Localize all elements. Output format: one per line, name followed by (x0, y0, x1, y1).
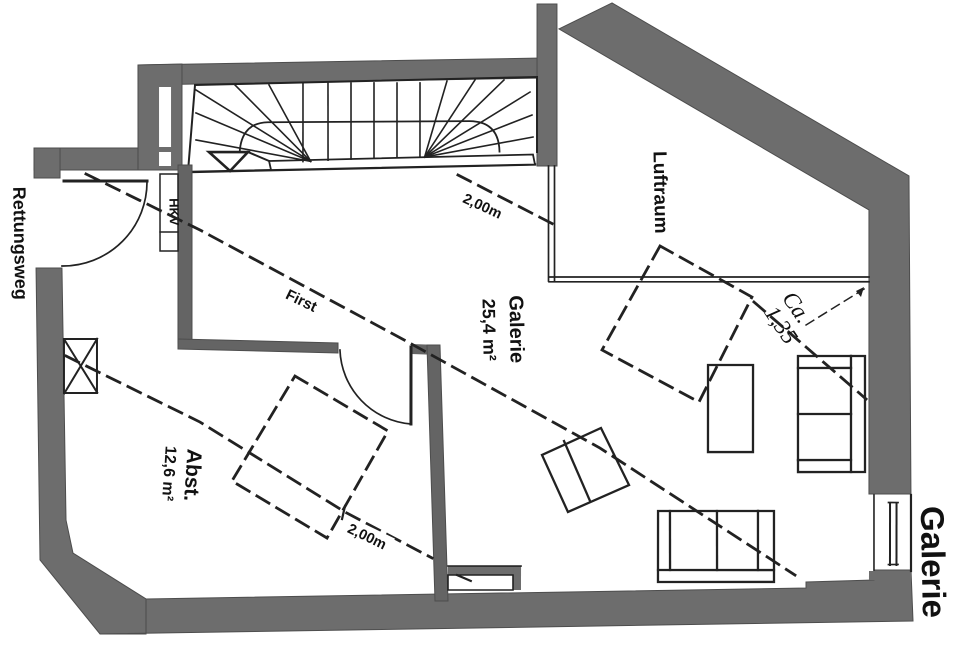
svg-text:HKV: HKV (166, 198, 182, 226)
svg-text:Rettungsweg: Rettungsweg (9, 187, 31, 300)
svg-text:Luftraum: Luftraum (649, 151, 672, 234)
svg-text:Galerie: Galerie (914, 506, 953, 619)
svg-text:25,4 m²: 25,4 m² (478, 299, 499, 361)
svg-text:Abst.: Abst. (179, 448, 205, 502)
svg-text:Galerie: Galerie (504, 295, 527, 363)
